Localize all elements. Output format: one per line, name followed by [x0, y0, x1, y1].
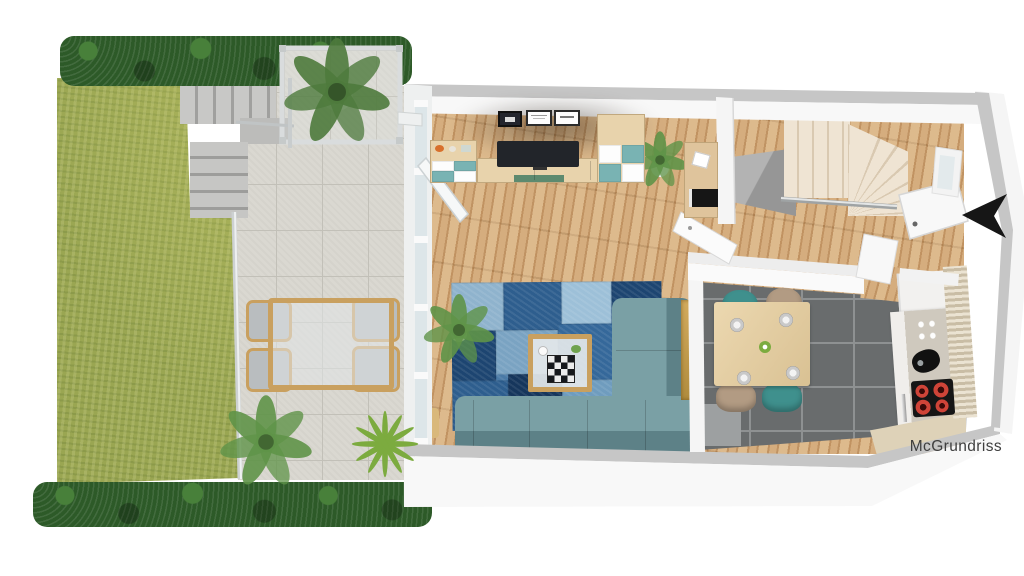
- shelf-cabinet-left: [430, 140, 477, 183]
- window-mullion: [414, 372, 428, 379]
- dinner-plate: [730, 318, 744, 332]
- dining-chair-beige: [716, 382, 756, 412]
- dinner-plate: [737, 371, 751, 385]
- coffee-table: [528, 334, 592, 392]
- wall-outer-face-east: [975, 91, 1024, 434]
- stove-burner: [933, 382, 949, 398]
- desk-books: [689, 189, 718, 207]
- balcony-enclosure-tiles: [284, 50, 398, 142]
- sofa-main: [455, 396, 692, 456]
- dinner-plate: [779, 313, 793, 327]
- window-mullion: [414, 438, 428, 445]
- desk: [684, 142, 718, 218]
- garden-steps-lower: [190, 142, 248, 218]
- table-decor-green: [571, 345, 581, 353]
- floorplan-render: McGrundriss: [0, 0, 1024, 576]
- entrance-arrow-icon: [962, 194, 1007, 238]
- window-mullion: [414, 100, 428, 107]
- stove-burner: [915, 384, 929, 398]
- stove-top: [911, 379, 955, 418]
- garden-steps-landing: [240, 118, 288, 144]
- tv-stand: [533, 167, 547, 170]
- wall-picture-frame: [498, 111, 522, 127]
- wall-top-face-east: [975, 92, 1013, 428]
- chessboard: [547, 355, 575, 383]
- table-decor-cup: [538, 346, 548, 356]
- wall-picture-frame: [554, 110, 580, 126]
- stove-burner: [915, 399, 931, 415]
- hedge-bottom: [33, 482, 432, 527]
- egg-holder: [915, 317, 941, 345]
- window-mullion: [414, 168, 428, 175]
- dinner-plate: [786, 366, 800, 380]
- desk-paper: [691, 151, 710, 169]
- window-mullion: [414, 304, 428, 311]
- wall-basket: [427, 408, 439, 438]
- table-centerpiece: [759, 341, 771, 353]
- wall-picture-frame: [526, 110, 552, 126]
- window-mullion: [414, 236, 428, 243]
- stove-burner: [935, 399, 949, 413]
- tv-screen: [497, 141, 579, 167]
- watermark-label: McGrundriss: [856, 438, 1002, 460]
- shelf-cabinet-right: [597, 114, 645, 183]
- dining-chair-teal: [762, 382, 802, 412]
- window-glass-west: [415, 100, 427, 446]
- staircase-straight-flight: [784, 110, 850, 198]
- outdoor-table: [268, 298, 394, 390]
- gold-wall-decor: [681, 300, 694, 400]
